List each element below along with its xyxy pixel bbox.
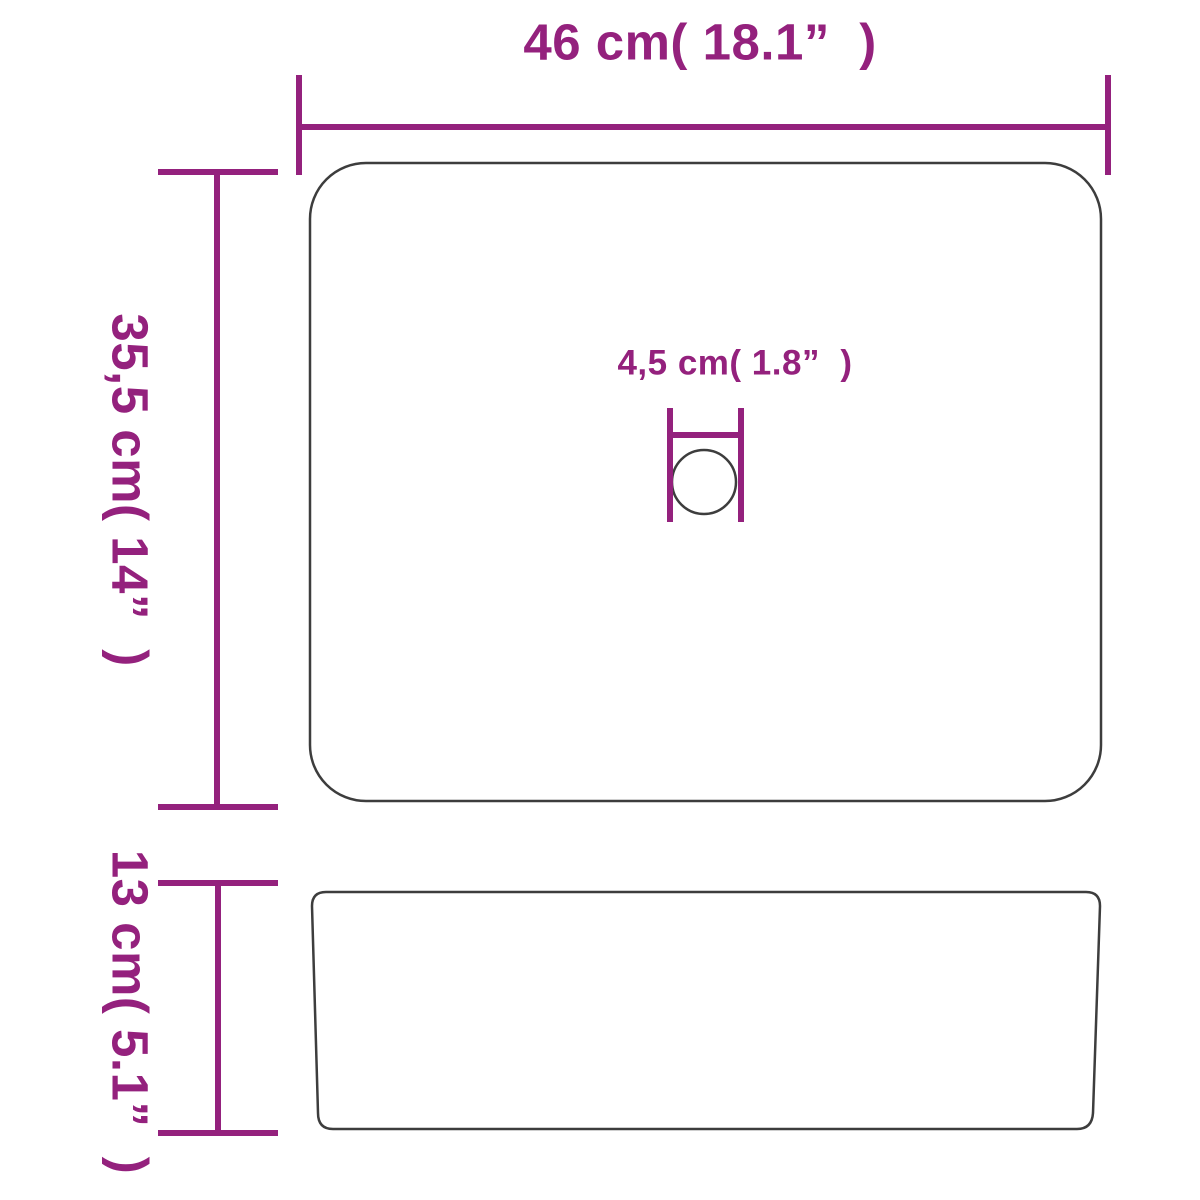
dimension-diagram: 46 cm( 18.1” ) 35,5 cm( 14” ) 4,5 cm( 1.… bbox=[0, 0, 1200, 1200]
hole-dimension-tick-left bbox=[667, 408, 673, 522]
width-dimension-tick-right bbox=[1105, 75, 1111, 175]
width-dimension-tick-left bbox=[296, 75, 302, 175]
top-view-outline bbox=[310, 163, 1101, 801]
product-outlines bbox=[0, 0, 1200, 1200]
height-dimension-label: 13 cm( 5.1” ) bbox=[105, 850, 156, 1174]
width-dimension-label: 46 cm( 18.1” ) bbox=[523, 17, 876, 68]
height-dimension-tick-top bbox=[158, 880, 278, 886]
depth-dimension-label: 35,5 cm( 14” ) bbox=[105, 313, 156, 666]
width-dimension-line bbox=[299, 124, 1108, 130]
side-view-outline bbox=[312, 892, 1100, 1129]
hole-dimension-tick-right bbox=[738, 408, 744, 522]
drain-hole-circle bbox=[672, 450, 736, 514]
depth-dimension-tick-bottom bbox=[158, 804, 278, 810]
height-dimension-line bbox=[215, 883, 221, 1133]
height-dimension-tick-bottom bbox=[158, 1130, 278, 1136]
hole-dimension-label: 4,5 cm( 1.8” ) bbox=[617, 346, 852, 381]
depth-dimension-tick-top bbox=[158, 169, 278, 175]
hole-dimension-line bbox=[667, 432, 744, 438]
depth-dimension-line bbox=[214, 172, 220, 807]
